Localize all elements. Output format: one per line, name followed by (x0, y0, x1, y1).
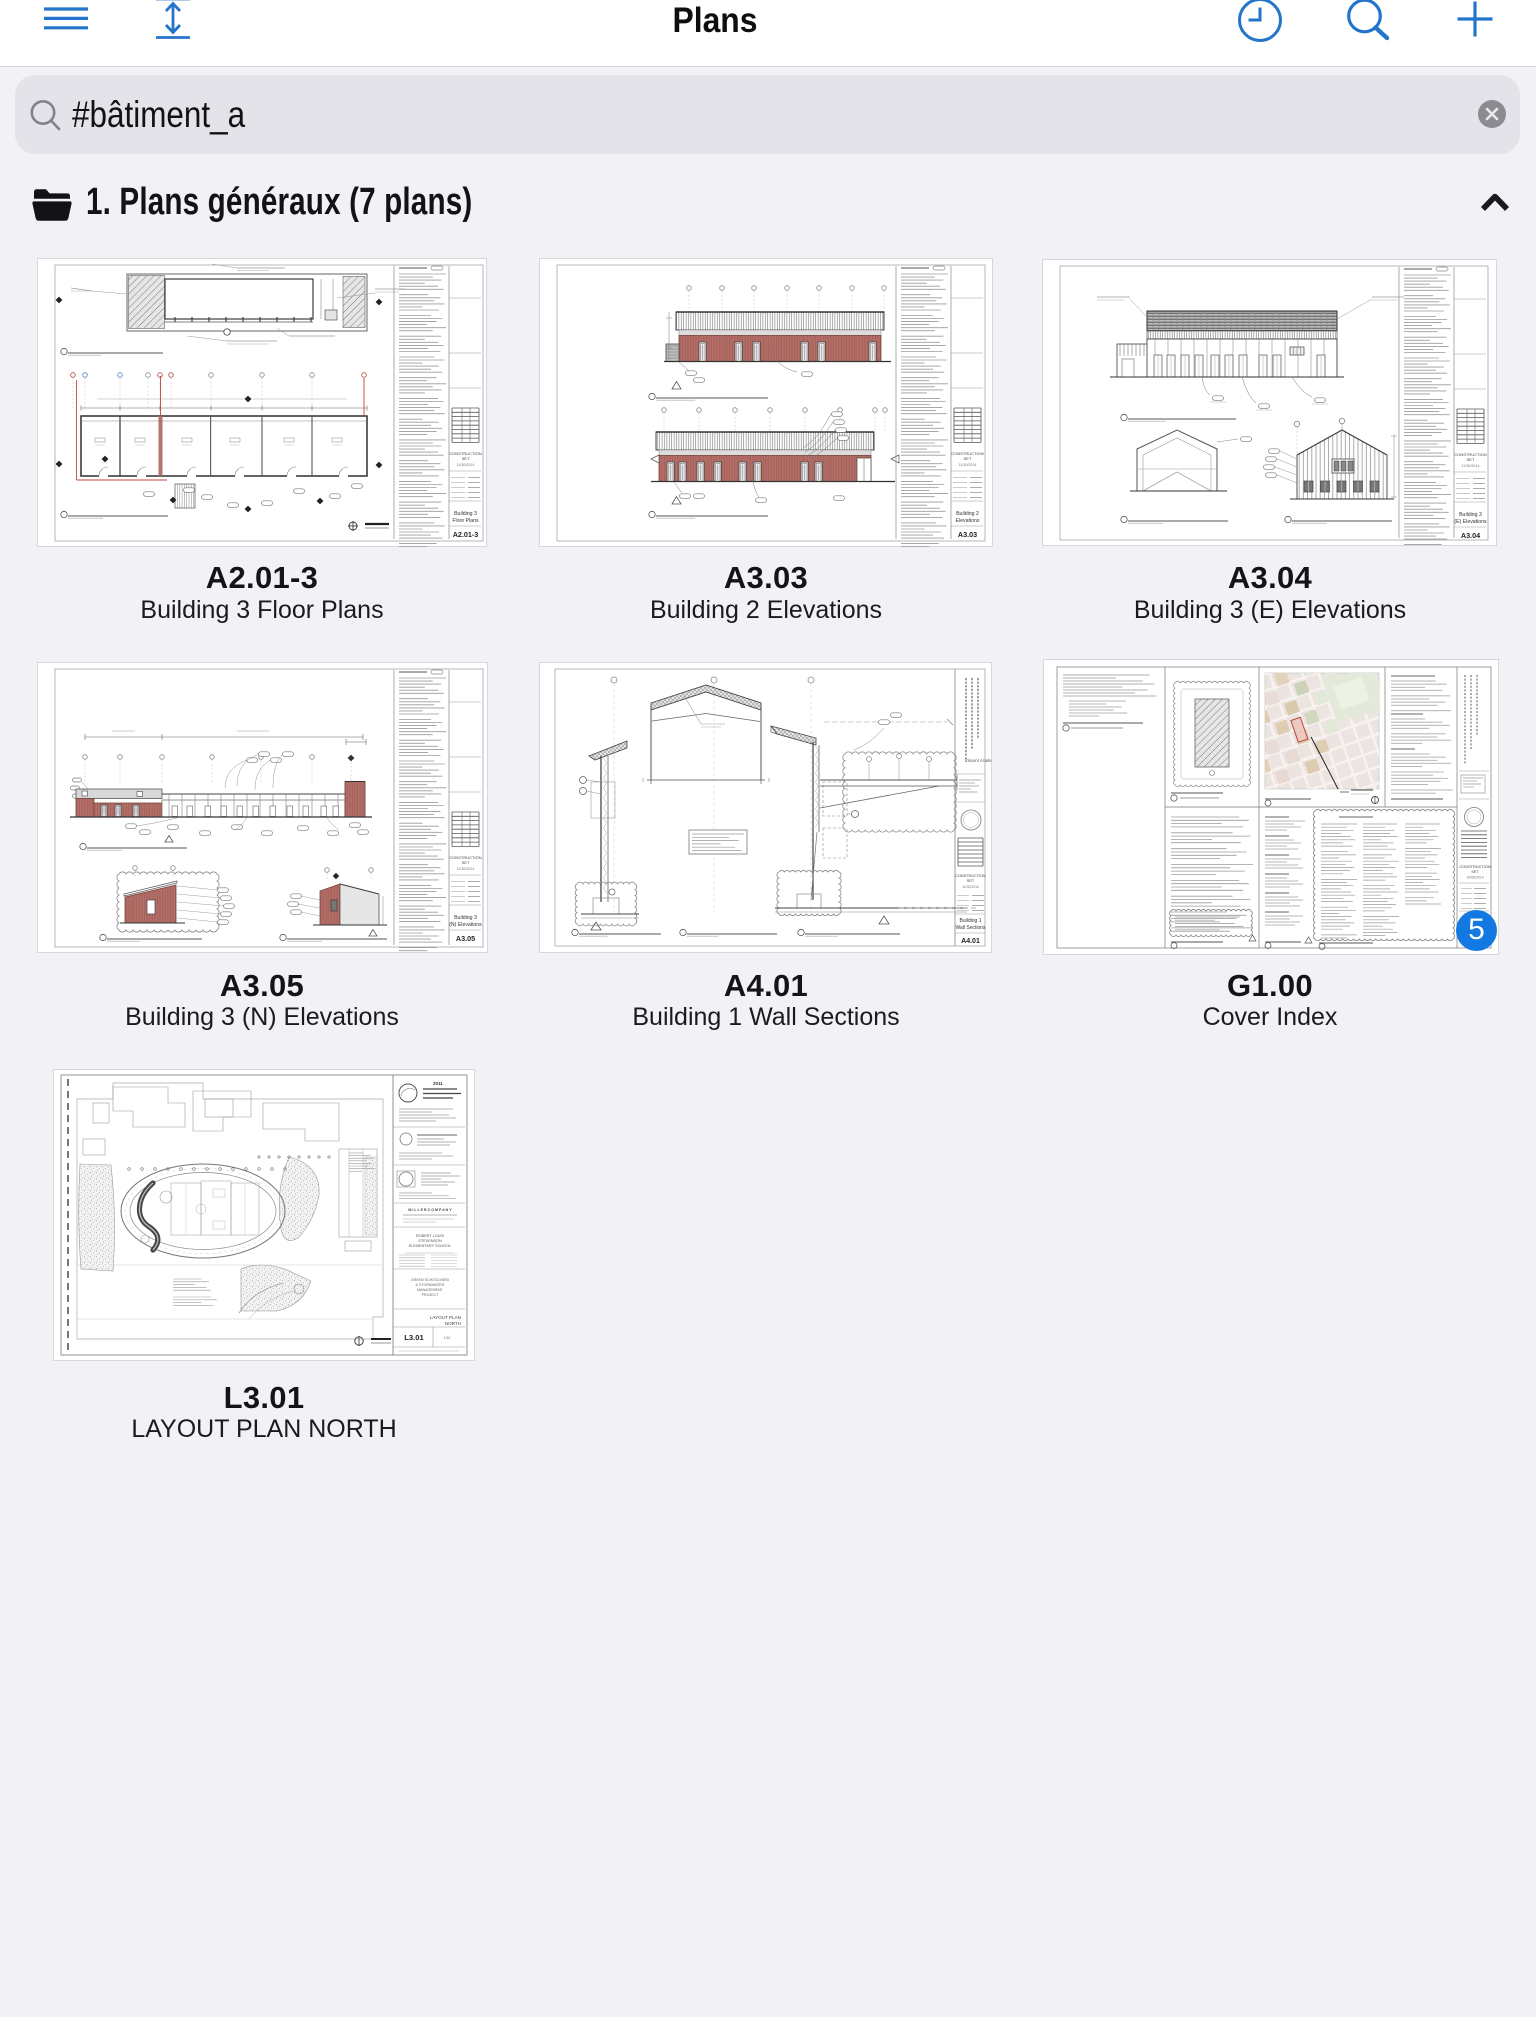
svg-text:Building 3: Building 3 (454, 511, 477, 517)
svg-text:A2.01-3: A2.01-3 (453, 530, 479, 539)
svg-text:A4.01: A4.01 (961, 938, 980, 945)
svg-text:GREEN SCHOOLYARD: GREEN SCHOOLYARD (411, 1278, 450, 1282)
svg-text:Building 1: Building 1 (960, 918, 982, 924)
svg-text:Wall Sections: Wall Sections (955, 925, 986, 931)
svg-text:ELEMENTARY SCHOOL: ELEMENTARY SCHOOL (409, 1244, 451, 1248)
svg-text:SET: SET (964, 456, 972, 461)
svg-text:Elevations: Elevations (956, 518, 980, 524)
svg-text:2011: 2011 (433, 1081, 443, 1086)
svg-text:SET: SET (1467, 457, 1475, 462)
svg-text:Floor Plans: Floor Plans (452, 518, 479, 524)
svg-text:A3.04: A3.04 (1461, 531, 1480, 540)
svg-text:A3.05: A3.05 (456, 934, 475, 943)
svg-text:10/06/2014: 10/06/2014 (1466, 876, 1484, 880)
svg-text:PROJECT: PROJECT (422, 1293, 440, 1297)
svg-text:SET: SET (967, 879, 975, 883)
svg-text:& STORMWATER: & STORMWATER (416, 1283, 445, 1287)
svg-text:(N) Elevations: (N) Elevations (449, 922, 482, 928)
svg-text:L3.01: L3.01 (404, 1333, 424, 1342)
svg-text:11/30/2014: 11/30/2014 (959, 463, 977, 467)
svg-text:ROBERT LOUIS: ROBERT LOUIS (416, 1234, 445, 1238)
svg-text:11/30/2014: 11/30/2014 (1462, 464, 1480, 468)
svg-text:STEVENSON: STEVENSON (418, 1239, 442, 1243)
svg-text:11/30/2014: 11/30/2014 (457, 463, 475, 467)
svg-text:11/30/2014: 11/30/2014 (457, 867, 475, 871)
svg-text:M I L L E R C O M P A N Y: M I L L E R C O M P A N Y (408, 1208, 452, 1212)
svg-text:SET: SET (462, 860, 470, 865)
svg-text:NORTH: NORTH (445, 1321, 461, 1326)
svg-text:SET: SET (462, 456, 470, 461)
svg-text:A3.03: A3.03 (958, 530, 977, 539)
svg-text:LAYOUT PLAN: LAYOUT PLAN (430, 1315, 461, 1320)
svg-text:Vincent Academy Charter School: Vincent Academy Charter School (965, 758, 992, 763)
svg-text:1/16: 1/16 (444, 1336, 451, 1340)
svg-text:11/30/2014: 11/30/2014 (962, 885, 979, 889)
svg-text:SET: SET (1471, 869, 1479, 874)
svg-text:Building 3: Building 3 (1459, 512, 1482, 518)
svg-text:MANAGEMENT: MANAGEMENT (417, 1288, 444, 1292)
svg-text:Building 2: Building 2 (956, 511, 979, 517)
svg-text:(E) Elevations: (E) Elevations (1454, 519, 1487, 525)
svg-text:CONSTRUCTION: CONSTRUCTION (955, 874, 986, 878)
svg-text:Building 3: Building 3 (454, 915, 477, 921)
